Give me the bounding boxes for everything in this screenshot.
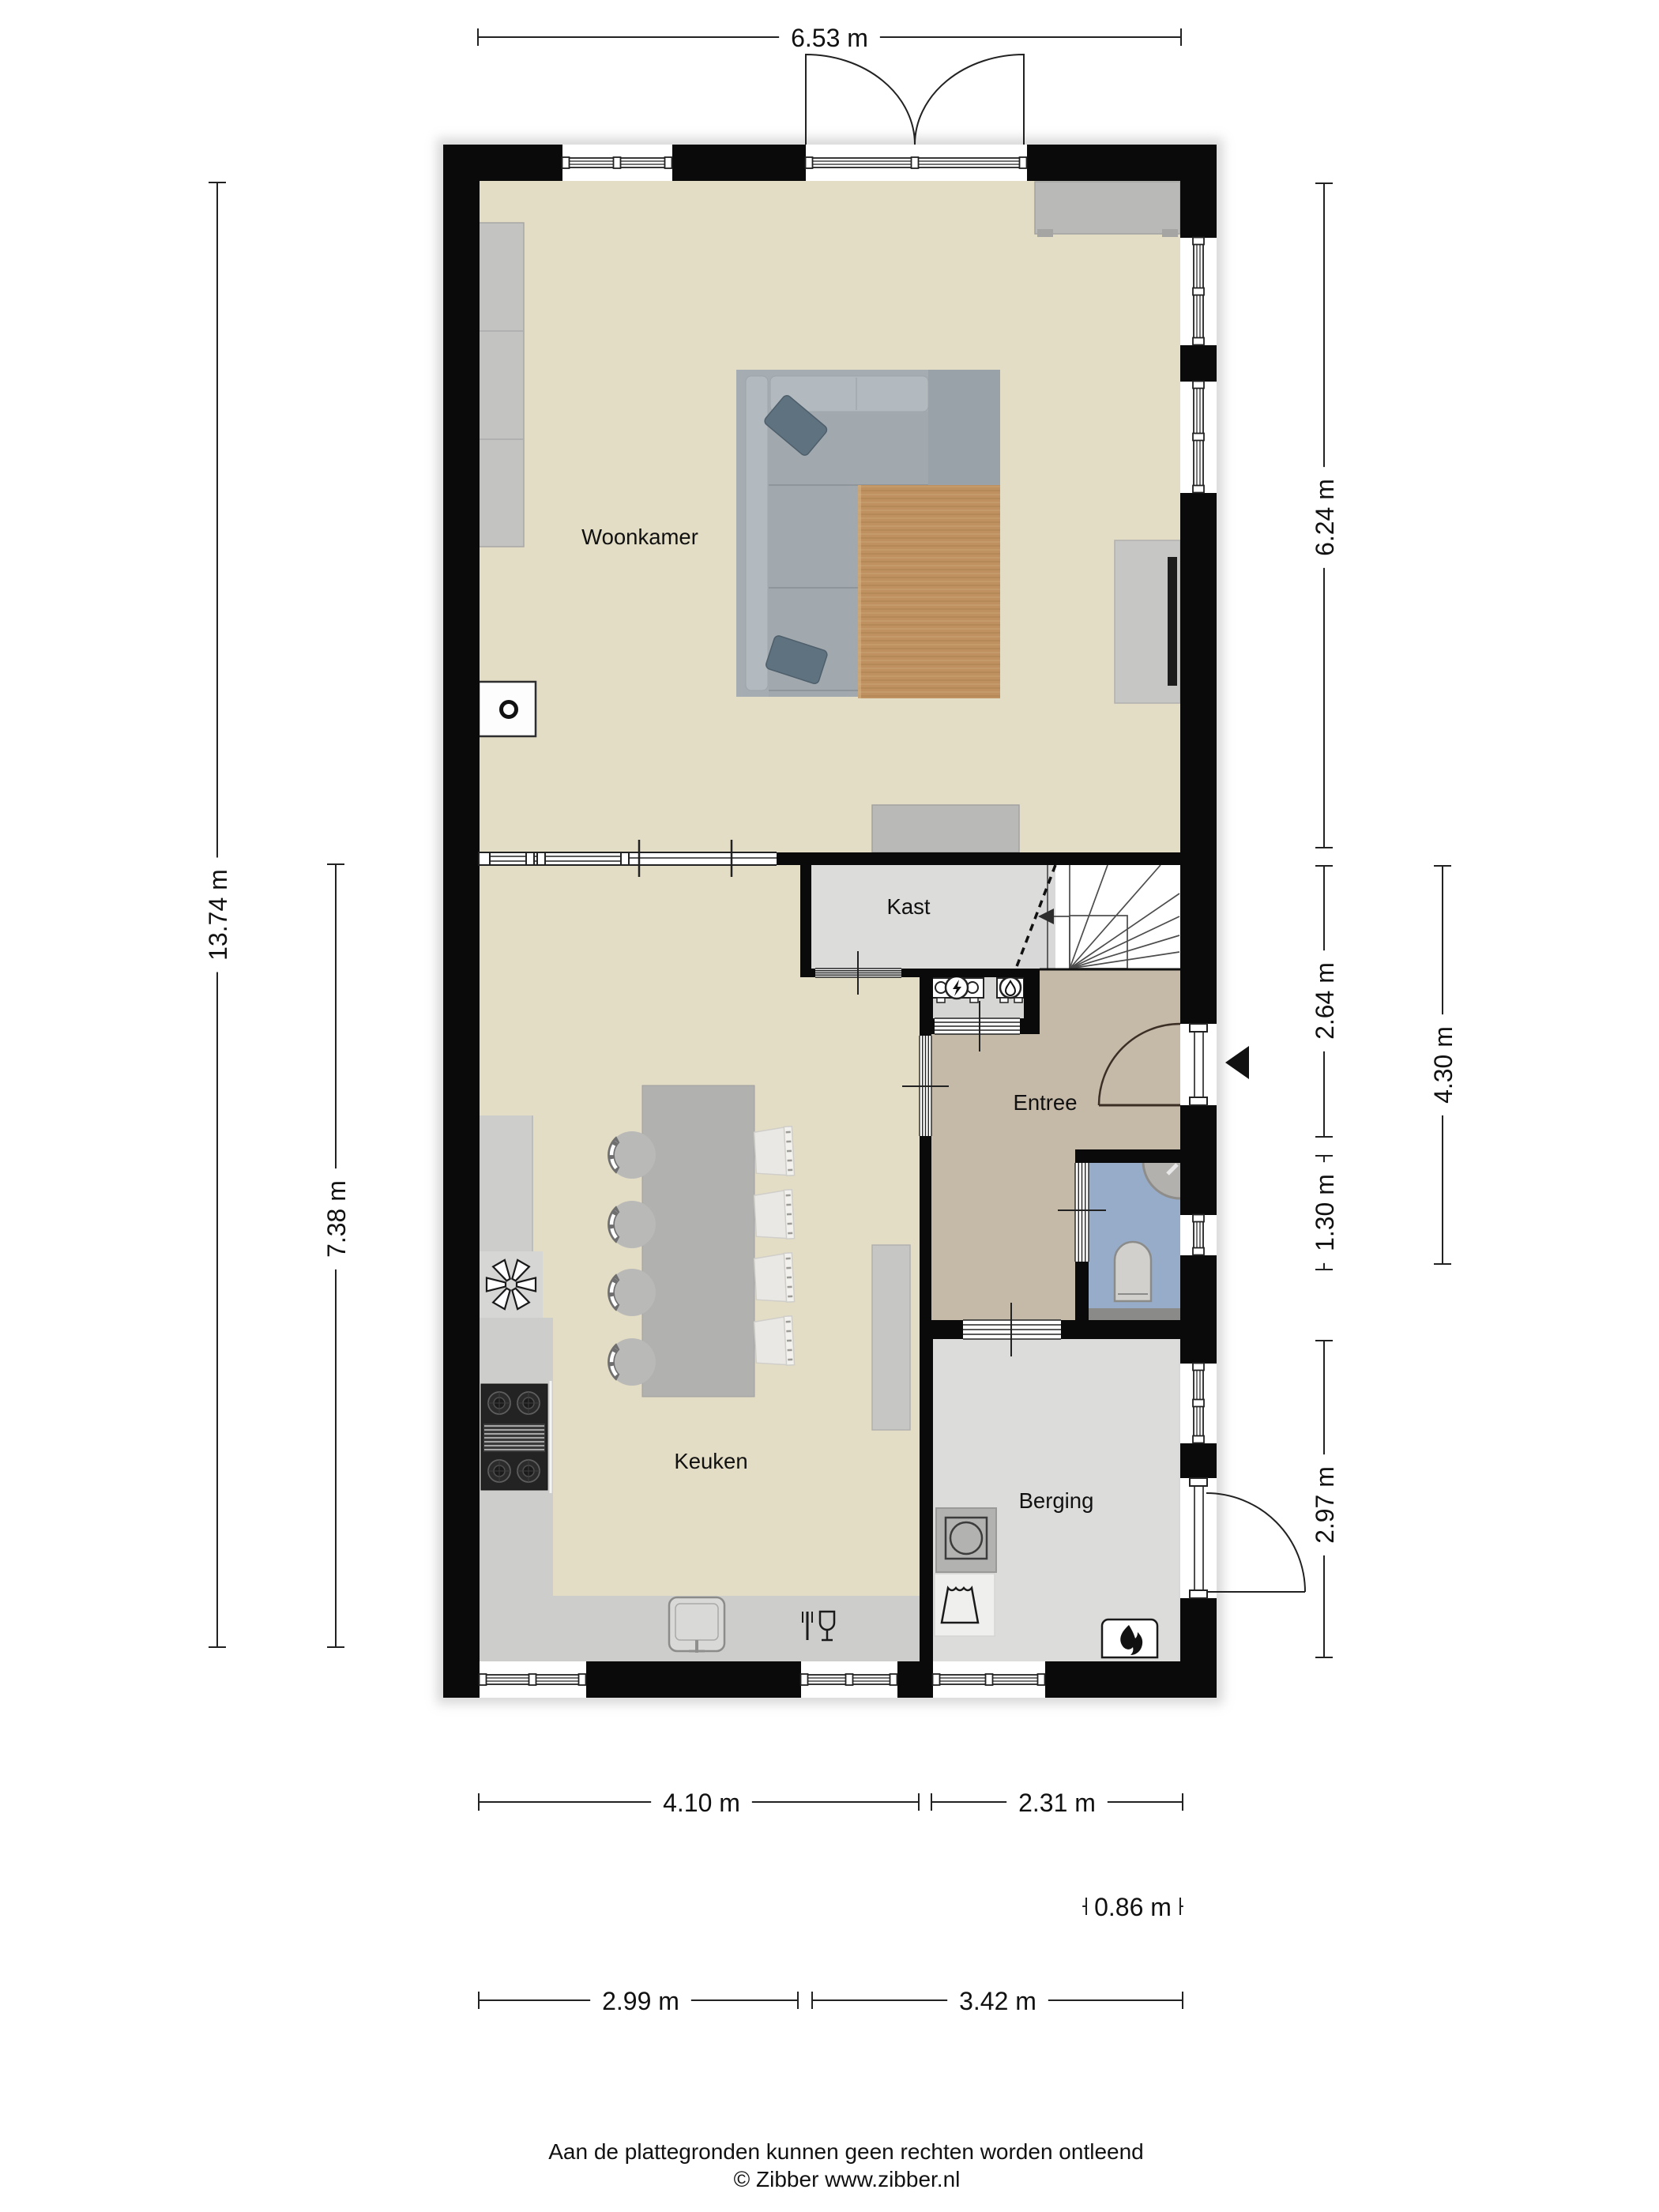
svg-text:Woonkamer: Woonkamer xyxy=(581,525,698,549)
svg-text:3.42 m: 3.42 m xyxy=(959,1987,1036,2015)
svg-text:2.97 m: 2.97 m xyxy=(1311,1466,1339,1544)
svg-text:2.31 m: 2.31 m xyxy=(1018,1789,1096,1817)
svg-text:2.99 m: 2.99 m xyxy=(602,1987,679,2015)
svg-text:4.10 m: 4.10 m xyxy=(663,1789,740,1817)
svg-text:Entree: Entree xyxy=(1013,1090,1077,1115)
svg-text:2.64 m: 2.64 m xyxy=(1311,962,1339,1040)
svg-text:Keuken: Keuken xyxy=(674,1449,747,1473)
svg-text:Aan de plattegronden kunnen ge: Aan de plattegronden kunnen geen rechten… xyxy=(548,2139,1143,2164)
svg-text:0.86 m: 0.86 m xyxy=(1094,1893,1172,1921)
svg-text:Kast: Kast xyxy=(886,894,930,919)
svg-text:4.30 m: 4.30 m xyxy=(1429,1026,1458,1104)
svg-text:© Zibber www.zibber.nl: © Zibber www.zibber.nl xyxy=(734,2167,961,2191)
svg-text:6.24 m: 6.24 m xyxy=(1311,479,1339,556)
svg-text:6.53 m: 6.53 m xyxy=(791,24,868,52)
svg-text:Berging: Berging xyxy=(1019,1488,1094,1513)
svg-text:13.74 m: 13.74 m xyxy=(204,869,232,961)
svg-text:1.30 m: 1.30 m xyxy=(1311,1174,1339,1251)
svg-text:7.38 m: 7.38 m xyxy=(322,1180,351,1258)
